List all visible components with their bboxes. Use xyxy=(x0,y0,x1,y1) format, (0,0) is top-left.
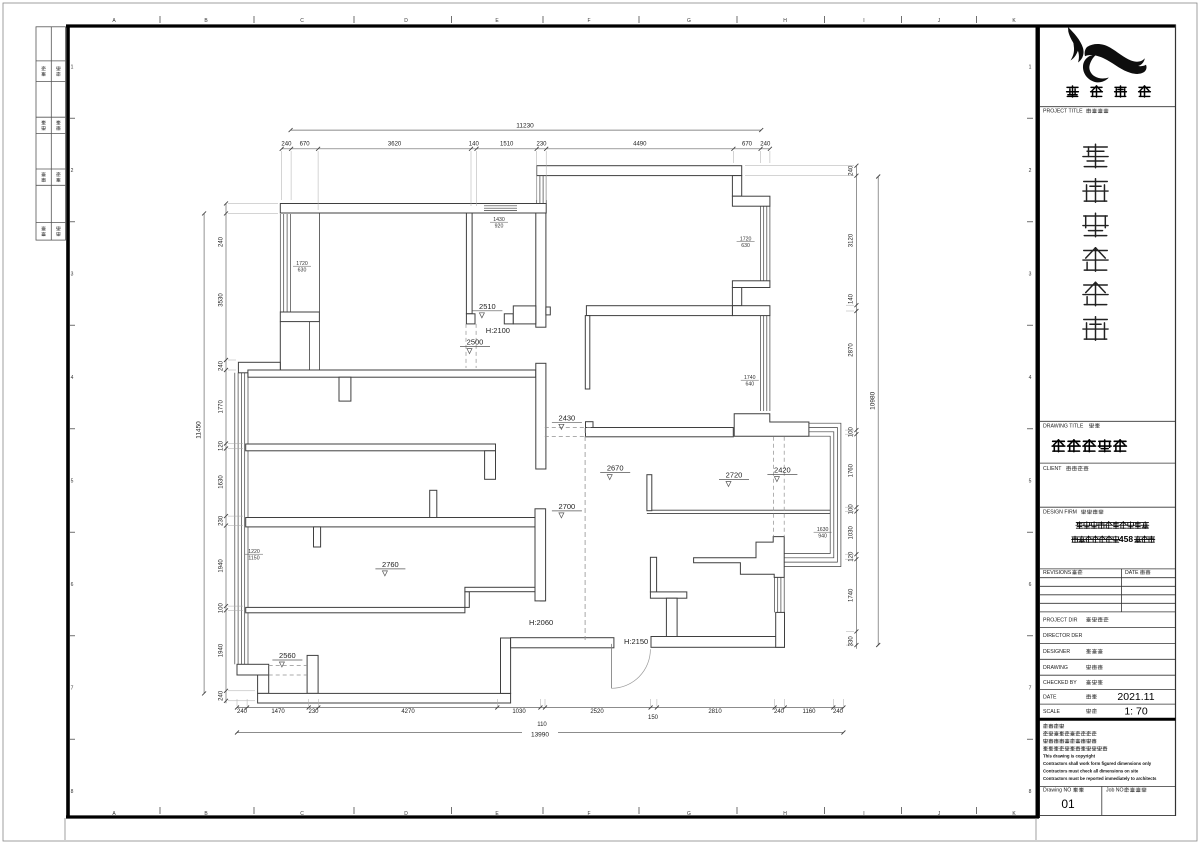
svg-text:DESIGN FIRM: DESIGN FIRM xyxy=(1043,510,1077,516)
svg-text:100: 100 xyxy=(849,427,855,438)
svg-text:C: C xyxy=(300,18,304,24)
svg-text:G: G xyxy=(687,18,691,24)
svg-text:7: 7 xyxy=(71,686,74,692)
svg-text:120: 120 xyxy=(849,551,855,562)
svg-text:DRAWING TITLE: DRAWING TITLE xyxy=(1043,423,1084,429)
svg-text:3: 3 xyxy=(71,272,74,278)
svg-text:2870: 2870 xyxy=(849,343,855,357)
svg-text:230: 230 xyxy=(219,515,225,526)
svg-text:K: K xyxy=(1012,18,1016,24)
svg-text:A: A xyxy=(112,18,116,24)
svg-text:PROJECT DIR: PROJECT DIR xyxy=(1043,617,1078,623)
svg-text:C: C xyxy=(300,811,304,817)
svg-text:1160: 1160 xyxy=(803,709,817,715)
svg-text:330: 330 xyxy=(849,636,855,647)
svg-text:6: 6 xyxy=(1029,582,1032,588)
svg-text:2520: 2520 xyxy=(590,709,604,715)
svg-text:H: H xyxy=(783,18,787,24)
svg-text:11450: 11450 xyxy=(196,421,203,439)
svg-text:13990: 13990 xyxy=(531,732,549,739)
svg-text:D: D xyxy=(404,18,408,24)
svg-text:5: 5 xyxy=(71,479,74,485)
svg-text:2430: 2430 xyxy=(559,413,576,422)
svg-text:4: 4 xyxy=(71,375,74,381)
svg-text:8: 8 xyxy=(1029,789,1032,795)
svg-text:PROJECT TITLE: PROJECT TITLE xyxy=(1043,109,1083,115)
svg-text:100: 100 xyxy=(219,603,225,614)
svg-text:F: F xyxy=(587,811,590,817)
svg-text:Contractors shall work form fi: Contractors shall work form figured dime… xyxy=(1043,761,1152,766)
svg-text:H:2060: H:2060 xyxy=(529,618,553,627)
svg-text:2: 2 xyxy=(71,168,74,174)
svg-text:920: 920 xyxy=(495,223,504,229)
svg-text:1030: 1030 xyxy=(849,525,855,539)
svg-text:This drawing is copyright: This drawing is copyright xyxy=(1043,754,1096,759)
svg-text:8: 8 xyxy=(71,789,74,795)
svg-text:1: 1 xyxy=(1029,65,1032,71)
svg-text:3120: 3120 xyxy=(849,233,855,247)
svg-text:240: 240 xyxy=(833,709,844,715)
svg-text:7: 7 xyxy=(1029,686,1032,692)
svg-text:2700: 2700 xyxy=(559,502,576,511)
svg-text:DATE: DATE xyxy=(1125,570,1139,576)
svg-text:1740: 1740 xyxy=(849,588,855,602)
svg-text:240: 240 xyxy=(237,709,248,715)
svg-text:DATE: DATE xyxy=(1043,694,1057,700)
svg-text:2510: 2510 xyxy=(479,302,496,311)
svg-text:CLIENT: CLIENT xyxy=(1043,466,1062,472)
svg-text:SCALE: SCALE xyxy=(1043,709,1061,715)
svg-text:1510: 1510 xyxy=(500,142,514,148)
svg-text:H:2150: H:2150 xyxy=(624,637,648,646)
svg-text:2720: 2720 xyxy=(726,471,743,480)
svg-text:1760: 1760 xyxy=(849,463,855,477)
svg-text:140: 140 xyxy=(469,142,480,148)
svg-text:1: 1 xyxy=(71,65,74,71)
svg-text:F: F xyxy=(587,18,590,24)
svg-text:10980: 10980 xyxy=(870,391,877,409)
svg-text:4490: 4490 xyxy=(633,142,647,148)
svg-text:3620: 3620 xyxy=(388,142,402,148)
svg-text:110: 110 xyxy=(537,722,547,728)
svg-text:230: 230 xyxy=(308,709,319,715)
svg-text:11230: 11230 xyxy=(516,123,534,130)
svg-text:2: 2 xyxy=(1029,168,1032,174)
svg-text:D: D xyxy=(404,811,408,817)
svg-text:Contractors must check all dim: Contractors must check all dimensions on… xyxy=(1043,769,1139,774)
svg-text:H:2100: H:2100 xyxy=(486,326,510,335)
svg-text:1770: 1770 xyxy=(219,399,225,413)
svg-text:G: G xyxy=(687,811,691,817)
svg-text:630: 630 xyxy=(741,243,750,249)
svg-text:240: 240 xyxy=(219,360,225,371)
svg-text:630: 630 xyxy=(298,267,307,273)
svg-text:670: 670 xyxy=(300,142,311,148)
svg-text:1030: 1030 xyxy=(512,709,526,715)
svg-text:140: 140 xyxy=(849,293,855,304)
svg-text:5: 5 xyxy=(1029,479,1032,485)
svg-text:3: 3 xyxy=(1029,272,1032,278)
svg-text:240: 240 xyxy=(760,142,771,148)
svg-text:E: E xyxy=(495,18,499,24)
svg-text:Drawing NO: Drawing NO xyxy=(1043,788,1071,794)
svg-text:B: B xyxy=(204,18,208,24)
svg-text:240: 240 xyxy=(849,165,855,176)
svg-text:2810: 2810 xyxy=(708,709,722,715)
svg-text:640: 640 xyxy=(745,381,754,387)
svg-text:DIRECTOR DER: DIRECTOR DER xyxy=(1043,633,1083,639)
svg-text:J: J xyxy=(938,18,941,24)
svg-text:2560: 2560 xyxy=(279,651,296,660)
svg-text:1940: 1940 xyxy=(219,559,225,573)
svg-text:REVISIONS: REVISIONS xyxy=(1043,570,1072,576)
svg-text:1: 70: 1: 70 xyxy=(1124,706,1148,718)
svg-text:2500: 2500 xyxy=(467,338,484,347)
svg-text:670: 670 xyxy=(742,142,753,148)
svg-text:2760: 2760 xyxy=(382,560,399,569)
svg-text:4270: 4270 xyxy=(401,709,415,715)
svg-text:240: 240 xyxy=(774,709,785,715)
svg-text:458: 458 xyxy=(1119,534,1133,544)
svg-text:100: 100 xyxy=(849,504,855,515)
svg-text:6: 6 xyxy=(71,582,74,588)
svg-text:H: H xyxy=(783,811,787,817)
svg-text:2670: 2670 xyxy=(607,464,624,473)
svg-text:Job NO: Job NO xyxy=(1106,788,1124,794)
svg-text:I: I xyxy=(863,811,864,817)
svg-text:940: 940 xyxy=(818,533,827,539)
svg-text:1630: 1630 xyxy=(219,475,225,489)
svg-text:4: 4 xyxy=(1029,375,1032,381)
svg-text:120: 120 xyxy=(219,440,225,451)
svg-text:240: 240 xyxy=(219,690,225,701)
svg-text:3530: 3530 xyxy=(219,293,225,307)
svg-text:DESIGNER: DESIGNER xyxy=(1043,649,1070,655)
svg-text:240: 240 xyxy=(281,142,292,148)
svg-text:1150: 1150 xyxy=(248,555,259,561)
svg-text:2420: 2420 xyxy=(774,466,791,475)
svg-text:2021.11: 2021.11 xyxy=(1117,691,1154,703)
svg-text:1940: 1940 xyxy=(219,643,225,657)
svg-text:150: 150 xyxy=(648,715,659,721)
svg-text:240: 240 xyxy=(219,236,225,247)
svg-text:DRAWING: DRAWING xyxy=(1043,665,1068,671)
svg-text:I: I xyxy=(863,18,864,24)
svg-text:1470: 1470 xyxy=(271,709,285,715)
svg-text:CHECKED BY: CHECKED BY xyxy=(1043,680,1077,686)
svg-text:01: 01 xyxy=(1061,797,1075,811)
svg-text:230: 230 xyxy=(536,142,547,148)
svg-text:Contractors must be reported i: Contractors must be reported immediately… xyxy=(1043,776,1157,781)
